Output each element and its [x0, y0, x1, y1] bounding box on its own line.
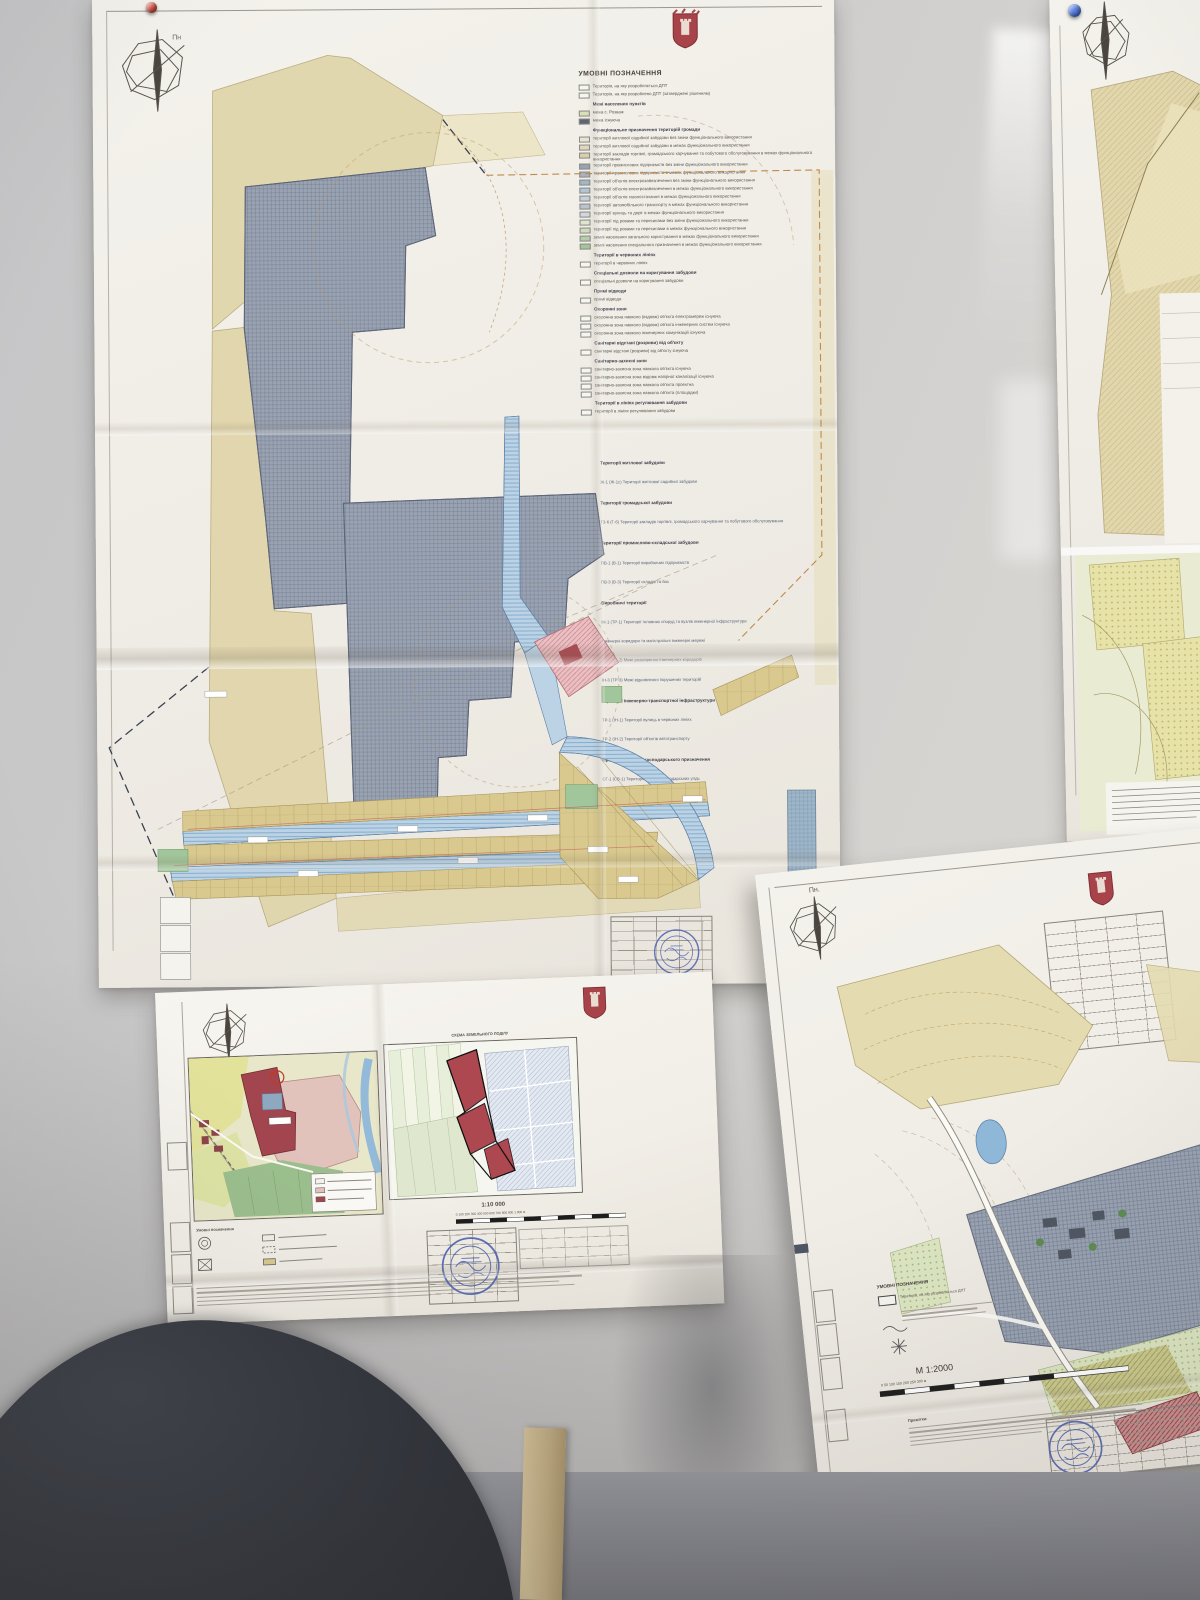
poster-title-line: [260, 991, 570, 1003]
poster-title: [260, 991, 570, 1003]
wood-trim: [520, 1427, 566, 1600]
poster-functional-zoning: Пн УМОВНІ ПОЗНАЧЕННЯ Територія, на яку р…: [92, 0, 841, 988]
compass-rose: [778, 891, 855, 966]
legend-icons: [196, 1228, 407, 1276]
notes-lines: [196, 1267, 587, 1309]
location-map: [188, 1051, 384, 1222]
zoning-map: [92, 0, 841, 988]
terrain-upper: [835, 936, 1100, 1116]
map-beige-top-right: [433, 112, 545, 166]
legend-label: Умовні позначення: [196, 1226, 234, 1232]
poster-fragment-top-right: [1049, 0, 1200, 842]
pond: [974, 1118, 1008, 1165]
poster-title-line: [260, 991, 570, 1003]
org-header-line: [607, 978, 709, 982]
org-header-line: [607, 978, 709, 982]
org-header-line: [607, 978, 709, 982]
margin-box: [172, 1286, 193, 1315]
map-parcels-upper-right: [713, 655, 799, 716]
map-green-parcel-2: [565, 784, 597, 808]
map-green-parcel-1: [158, 849, 188, 871]
pushpin-blue: [1068, 4, 1081, 17]
org-header: [607, 978, 709, 982]
map-beige-band-right: [811, 170, 837, 685]
wall-glare-2: [1000, 380, 1055, 560]
poster-title-line: [260, 991, 570, 1003]
legend-item-swatch: [878, 1295, 897, 1307]
org-header-line: [607, 978, 709, 982]
margin-box: [171, 1254, 192, 1285]
land-division-map: [383, 1037, 583, 1200]
map-inset-legend: [311, 1172, 376, 1212]
coat-of-arms: [1084, 865, 1118, 908]
margin-box: [170, 1222, 191, 1253]
poster-engineering-scheme: Пн.: [755, 826, 1200, 1504]
round-stamp: [650, 926, 702, 978]
coat-of-arms: [580, 982, 609, 1021]
scale-label: 1:10 000: [481, 1202, 505, 1209]
terrain-right: [1147, 955, 1200, 1074]
fragment-map: [1049, 0, 1200, 842]
engineering-map: [764, 915, 1200, 1441]
round-stamp: [436, 1232, 504, 1300]
map-green-parcel-3: [602, 686, 622, 702]
pushpin-red: [146, 2, 157, 13]
legend-icons: [880, 1316, 944, 1362]
photo-of-plans-on-wall: Пн УМОВНІ ПОЗНАЧЕННЯ Територія, на яку р…: [0, 0, 1200, 1600]
margin-boxes: [160, 897, 191, 979]
compass-label: Пн.: [809, 886, 821, 894]
marker-label: 10: [272, 1072, 278, 1078]
margin-box: [167, 1142, 188, 1171]
org-header-line: [607, 978, 709, 982]
